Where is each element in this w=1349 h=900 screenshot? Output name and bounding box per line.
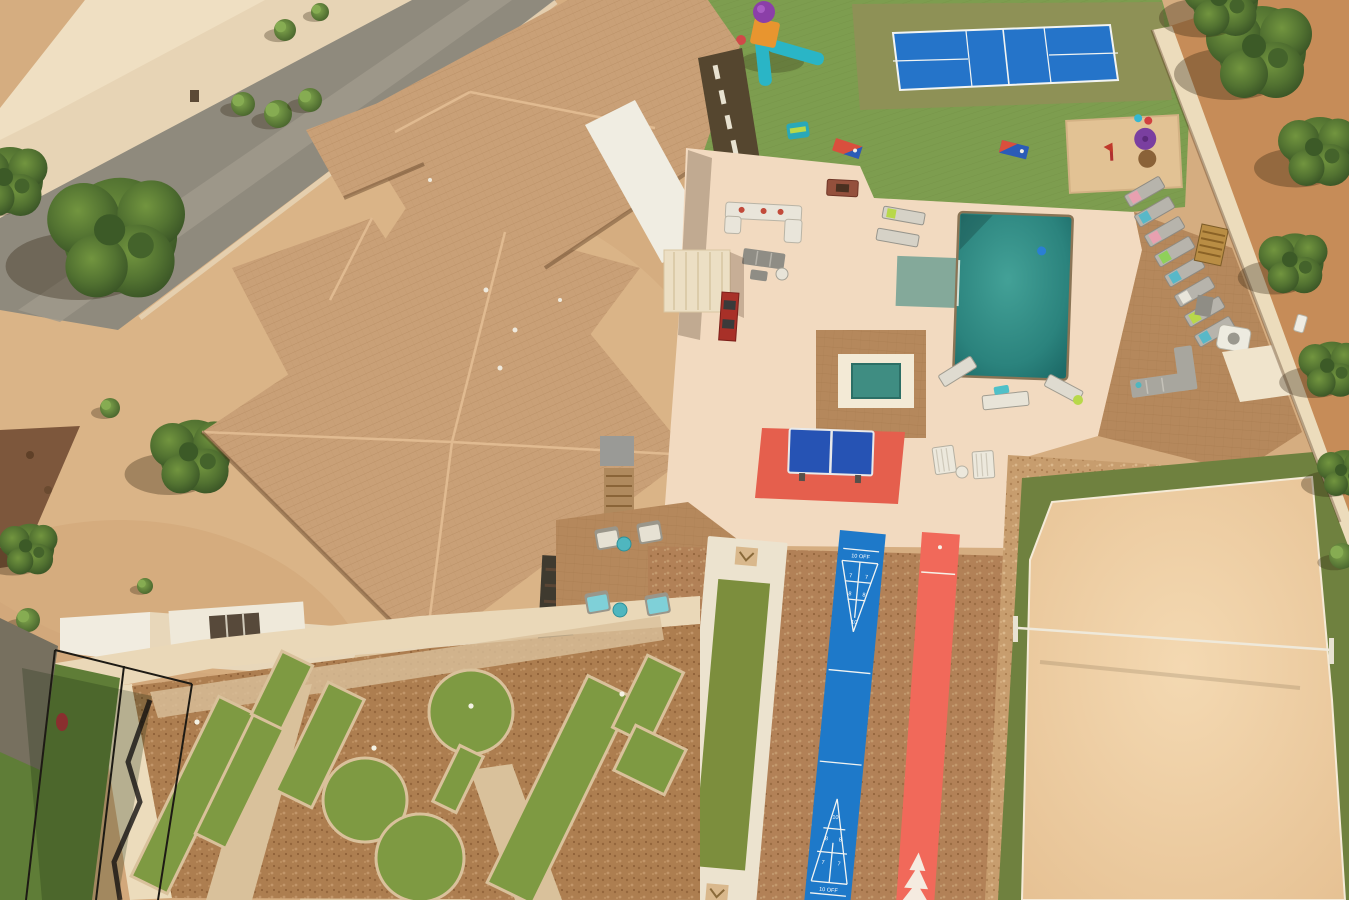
tetherball-sand-pit [1066, 112, 1182, 193]
adirondack-chair [932, 445, 957, 475]
vent [558, 298, 562, 302]
aerial-photo: 10 OFF 7 7 8 8 10 10 8 8 7 7 10 OFF [0, 0, 1349, 900]
vent [484, 288, 489, 293]
coffee-table [776, 268, 788, 280]
rock [26, 451, 34, 459]
spa [838, 354, 914, 408]
net-post [1013, 616, 1018, 642]
ac-unit [600, 436, 634, 466]
dome-highlight [757, 5, 765, 13]
tanning-ledge [896, 256, 960, 308]
golf-ball [371, 745, 376, 750]
zone-label: 8 [838, 837, 842, 843]
golf-ball [468, 703, 473, 708]
sofa-arm [784, 219, 802, 243]
sand-pit [1066, 115, 1182, 193]
pickleball-court [893, 25, 1118, 90]
vent [498, 366, 503, 371]
tree [0, 524, 58, 576]
mailbox [190, 90, 199, 102]
ping-pong [755, 428, 905, 504]
patio-armchair [644, 592, 671, 617]
chair-body [972, 451, 995, 479]
green-round [376, 814, 464, 900]
side-table-teal [617, 537, 631, 551]
cooler [786, 121, 810, 140]
table-leg [855, 475, 861, 483]
vent [513, 328, 518, 333]
patio-armchair [636, 520, 663, 545]
storage-box [1194, 295, 1213, 317]
zone-label: 7 [821, 860, 825, 866]
zone-label: 10 [832, 815, 839, 822]
zone-label: 10 [851, 620, 858, 627]
outdoor-kitchen [719, 292, 739, 341]
patio-armchair [584, 590, 611, 615]
aerial-scene: 10 OFF 7 7 8 8 10 10 8 8 7 7 10 OFF [0, 0, 1349, 900]
grill [722, 319, 735, 329]
fire-pit-burner [836, 184, 849, 193]
green-round [429, 670, 513, 754]
kitchen-red-cabinet [719, 292, 739, 341]
side-table-teal [613, 603, 627, 617]
zone-label: 7 [865, 575, 869, 581]
play-dome [753, 1, 775, 23]
sofa-chaise [724, 216, 741, 234]
red-equipment [56, 713, 68, 731]
zone-label: 7 [837, 861, 841, 867]
rock [44, 486, 52, 494]
float-lime [1073, 395, 1083, 405]
zone-label: 7 [849, 573, 853, 579]
zone-label: 8 [862, 592, 866, 598]
adirondack-chair [972, 451, 995, 479]
table-net-line [830, 430, 832, 474]
sand-volleyball-court [998, 450, 1349, 900]
zone-label: 8 [824, 836, 828, 842]
grill [723, 300, 736, 310]
chair-towel [886, 208, 896, 218]
fire-pit [827, 179, 859, 197]
small-table [956, 466, 968, 478]
end-pad [735, 546, 758, 566]
net-post [1329, 638, 1334, 664]
vent [428, 178, 432, 182]
spa-water [852, 364, 900, 398]
table-leg [799, 473, 805, 481]
golf-ball [194, 719, 199, 724]
tree [1159, 0, 1263, 38]
golf-ball [619, 691, 624, 696]
zone-label: 8 [848, 591, 852, 597]
